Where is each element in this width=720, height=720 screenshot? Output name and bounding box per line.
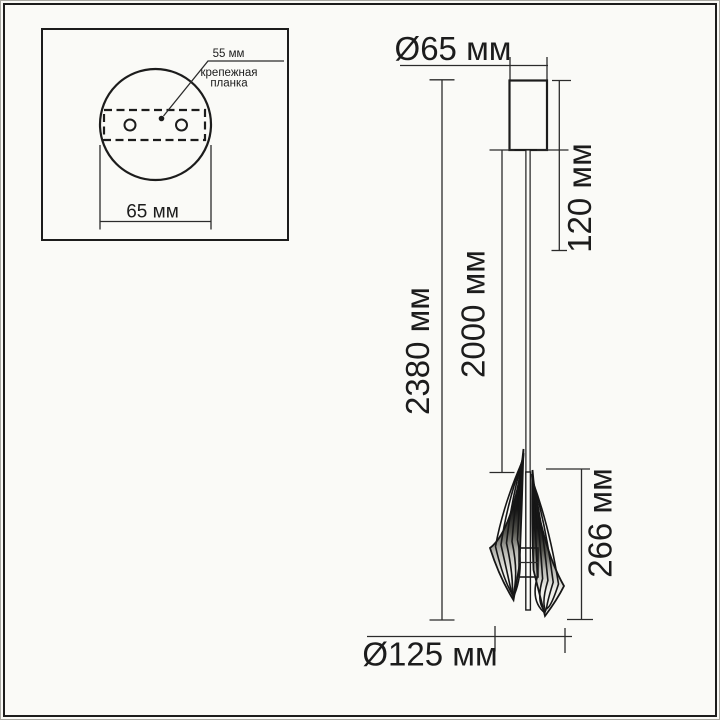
shade-right-sail (532, 470, 564, 616)
plate-span-label: 55 мм (213, 48, 245, 60)
canopy-top-view-circle (100, 69, 211, 180)
base-diameter-label: 65 мм (126, 202, 179, 223)
canopy-diameter-ticks (510, 57, 547, 81)
canopy-drop-label: 120 мм (561, 143, 598, 253)
pendant-side-view: Ø65 мм 120 мм 2380 мм 2000 мм 266 мм (362, 30, 618, 673)
ceiling-canopy (510, 81, 548, 151)
mounting-hole-right (176, 120, 187, 131)
plate-name-line2: планка (210, 78, 248, 90)
cable-length-label: 2000 мм (455, 250, 492, 378)
shade-height-label: 266 мм (582, 468, 619, 578)
canopy-diameter-label: Ø65 мм (395, 30, 512, 67)
leader-dot (159, 116, 165, 122)
mounting-plate-inset: 55 мм крепежная планка 65 мм (42, 29, 288, 240)
total-height-label: 2380 мм (399, 287, 436, 415)
shade-diameter-label: Ø125 мм (362, 636, 497, 673)
shade-diameter-ticks (495, 626, 565, 653)
suspension-cable (526, 150, 530, 474)
mounting-hole-left (125, 120, 136, 131)
mounting-plate-dashed-outline (104, 110, 205, 140)
dimension-drawing: 55 мм крепежная планка 65 мм Ø65 мм 120 … (0, 0, 720, 720)
center-rod (526, 472, 531, 610)
